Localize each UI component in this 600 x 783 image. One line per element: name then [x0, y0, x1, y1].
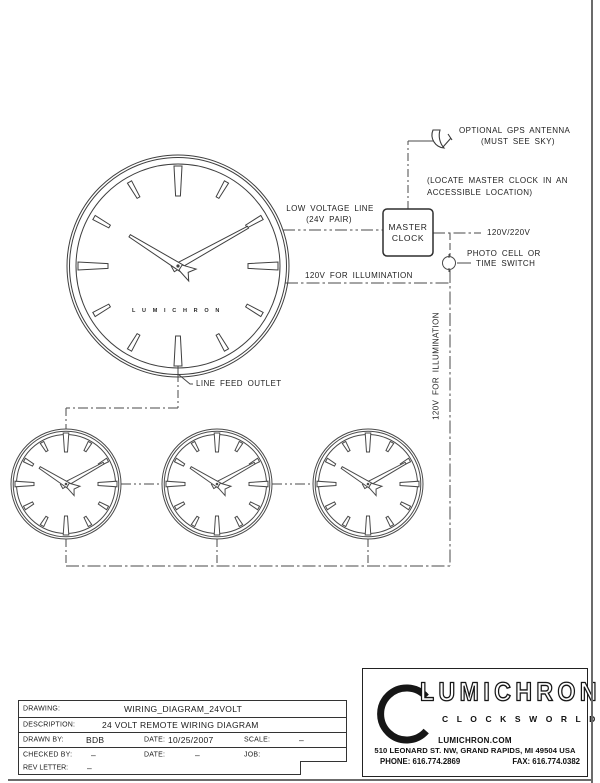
label-voltage: 120V/220V — [487, 228, 530, 238]
master-clock-label-line1: MASTER — [388, 222, 427, 233]
title-block-row-description: DESCRIPTION: 24 VOLT REMOTE WIRING DIAGR… — [19, 718, 346, 733]
date1-value: 10/25/2007 — [168, 735, 214, 745]
drawn-by-value: BDB — [86, 735, 104, 745]
label-gps-antenna-line2: (MUST SEE SKY) — [481, 137, 555, 147]
label-illumination-horizontal: 120V FOR ILLUMINATION — [305, 271, 413, 281]
title-block-row-rev: REV LETTER: – — [18, 761, 301, 775]
checked-by-value: – — [91, 750, 96, 760]
description-value: 24 VOLT REMOTE WIRING DIAGRAM — [102, 720, 259, 730]
small-clock-3 — [313, 429, 423, 539]
drawing-label: DRAWING: — [23, 706, 60, 713]
rev-letter-label: REV LETTER: — [23, 764, 68, 771]
logo-website: LUMICHRON.COM — [363, 736, 587, 745]
description-label: DESCRIPTION: — [23, 722, 75, 729]
photo-cell-icon — [443, 254, 456, 272]
title-block-row-drawing: DRAWING: WIRING_DIAGRAM_24VOLT — [19, 701, 346, 718]
sheet-bottom-border — [8, 779, 592, 781]
title-block-row-checked: CHECKED BY: – DATE: – JOB: — [19, 748, 346, 762]
sheet-right-border — [591, 0, 593, 783]
drawing-sheet: OPTIONAL GPS ANTENNA (MUST SEE SKY) (LOC… — [0, 0, 600, 783]
scale-label: SCALE: — [244, 737, 270, 744]
rev-letter-value: – — [87, 763, 92, 773]
label-illumination-vertical: 120V FOR ILLUMINATION — [432, 312, 441, 420]
label-locate-line2: ACCESSIBLE LOCATION) — [427, 188, 532, 198]
job-label: JOB: — [244, 752, 260, 759]
small-clock-2 — [162, 429, 272, 539]
checked-by-label: CHECKED BY: — [23, 752, 72, 759]
gps-antenna-icon — [432, 130, 452, 148]
date1-label: DATE: — [144, 737, 165, 744]
logo-block: LUMICHRON C L O C K S W O R L D W I D E … — [362, 668, 588, 777]
logo-tagline: C L O C K S W O R L D W I D E — [442, 714, 600, 724]
label-line-feed-outlet: LINE FEED OUTLET — [196, 379, 282, 389]
logo-phone: PHONE: 616.774.2869 — [380, 757, 460, 766]
logo-brand-text: LUMICHRON — [420, 677, 600, 707]
logo-address: 510 LEONARD ST. NW, GRAND RAPIDS, MI 495… — [363, 746, 587, 755]
hour-hand — [126, 230, 196, 281]
label-gps-antenna-line1: OPTIONAL GPS ANTENNA — [459, 126, 570, 136]
scale-value: – — [299, 735, 304, 745]
drawing-value: WIRING_DIAGRAM_24VOLT — [124, 704, 242, 714]
master-clock-label-line2: CLOCK — [392, 233, 424, 244]
label-low-voltage-line2: (24V PAIR) — [306, 215, 352, 225]
wiring-diagram-canvas — [0, 0, 600, 783]
master-clock-label: MASTER CLOCK — [383, 209, 433, 256]
wiring-lines — [66, 141, 481, 566]
large-clock-dial-brand: L U M I C H R O N — [132, 308, 222, 314]
label-locate-line1: (LOCATE MASTER CLOCK IN AN — [427, 176, 568, 186]
title-block-row-drawn: DRAWN BY: BDB DATE: 10/25/2007 SCALE: – — [19, 733, 346, 748]
label-photo-cell-line1: PHOTO CELL OR — [467, 249, 541, 259]
label-low-voltage-line1: LOW VOLTAGE LINE — [286, 204, 373, 214]
large-clock — [67, 155, 289, 377]
label-photo-cell-line2: TIME SWITCH — [476, 259, 535, 269]
logo-fax: FAX: 616.774.0382 — [512, 757, 580, 766]
drawn-by-label: DRAWN BY: — [23, 737, 64, 744]
small-clock-1 — [11, 429, 121, 539]
date2-label: DATE: — [144, 752, 165, 759]
title-block: DRAWING: WIRING_DIAGRAM_24VOLT DESCRIPTI… — [18, 700, 347, 762]
date2-value: – — [195, 750, 200, 760]
